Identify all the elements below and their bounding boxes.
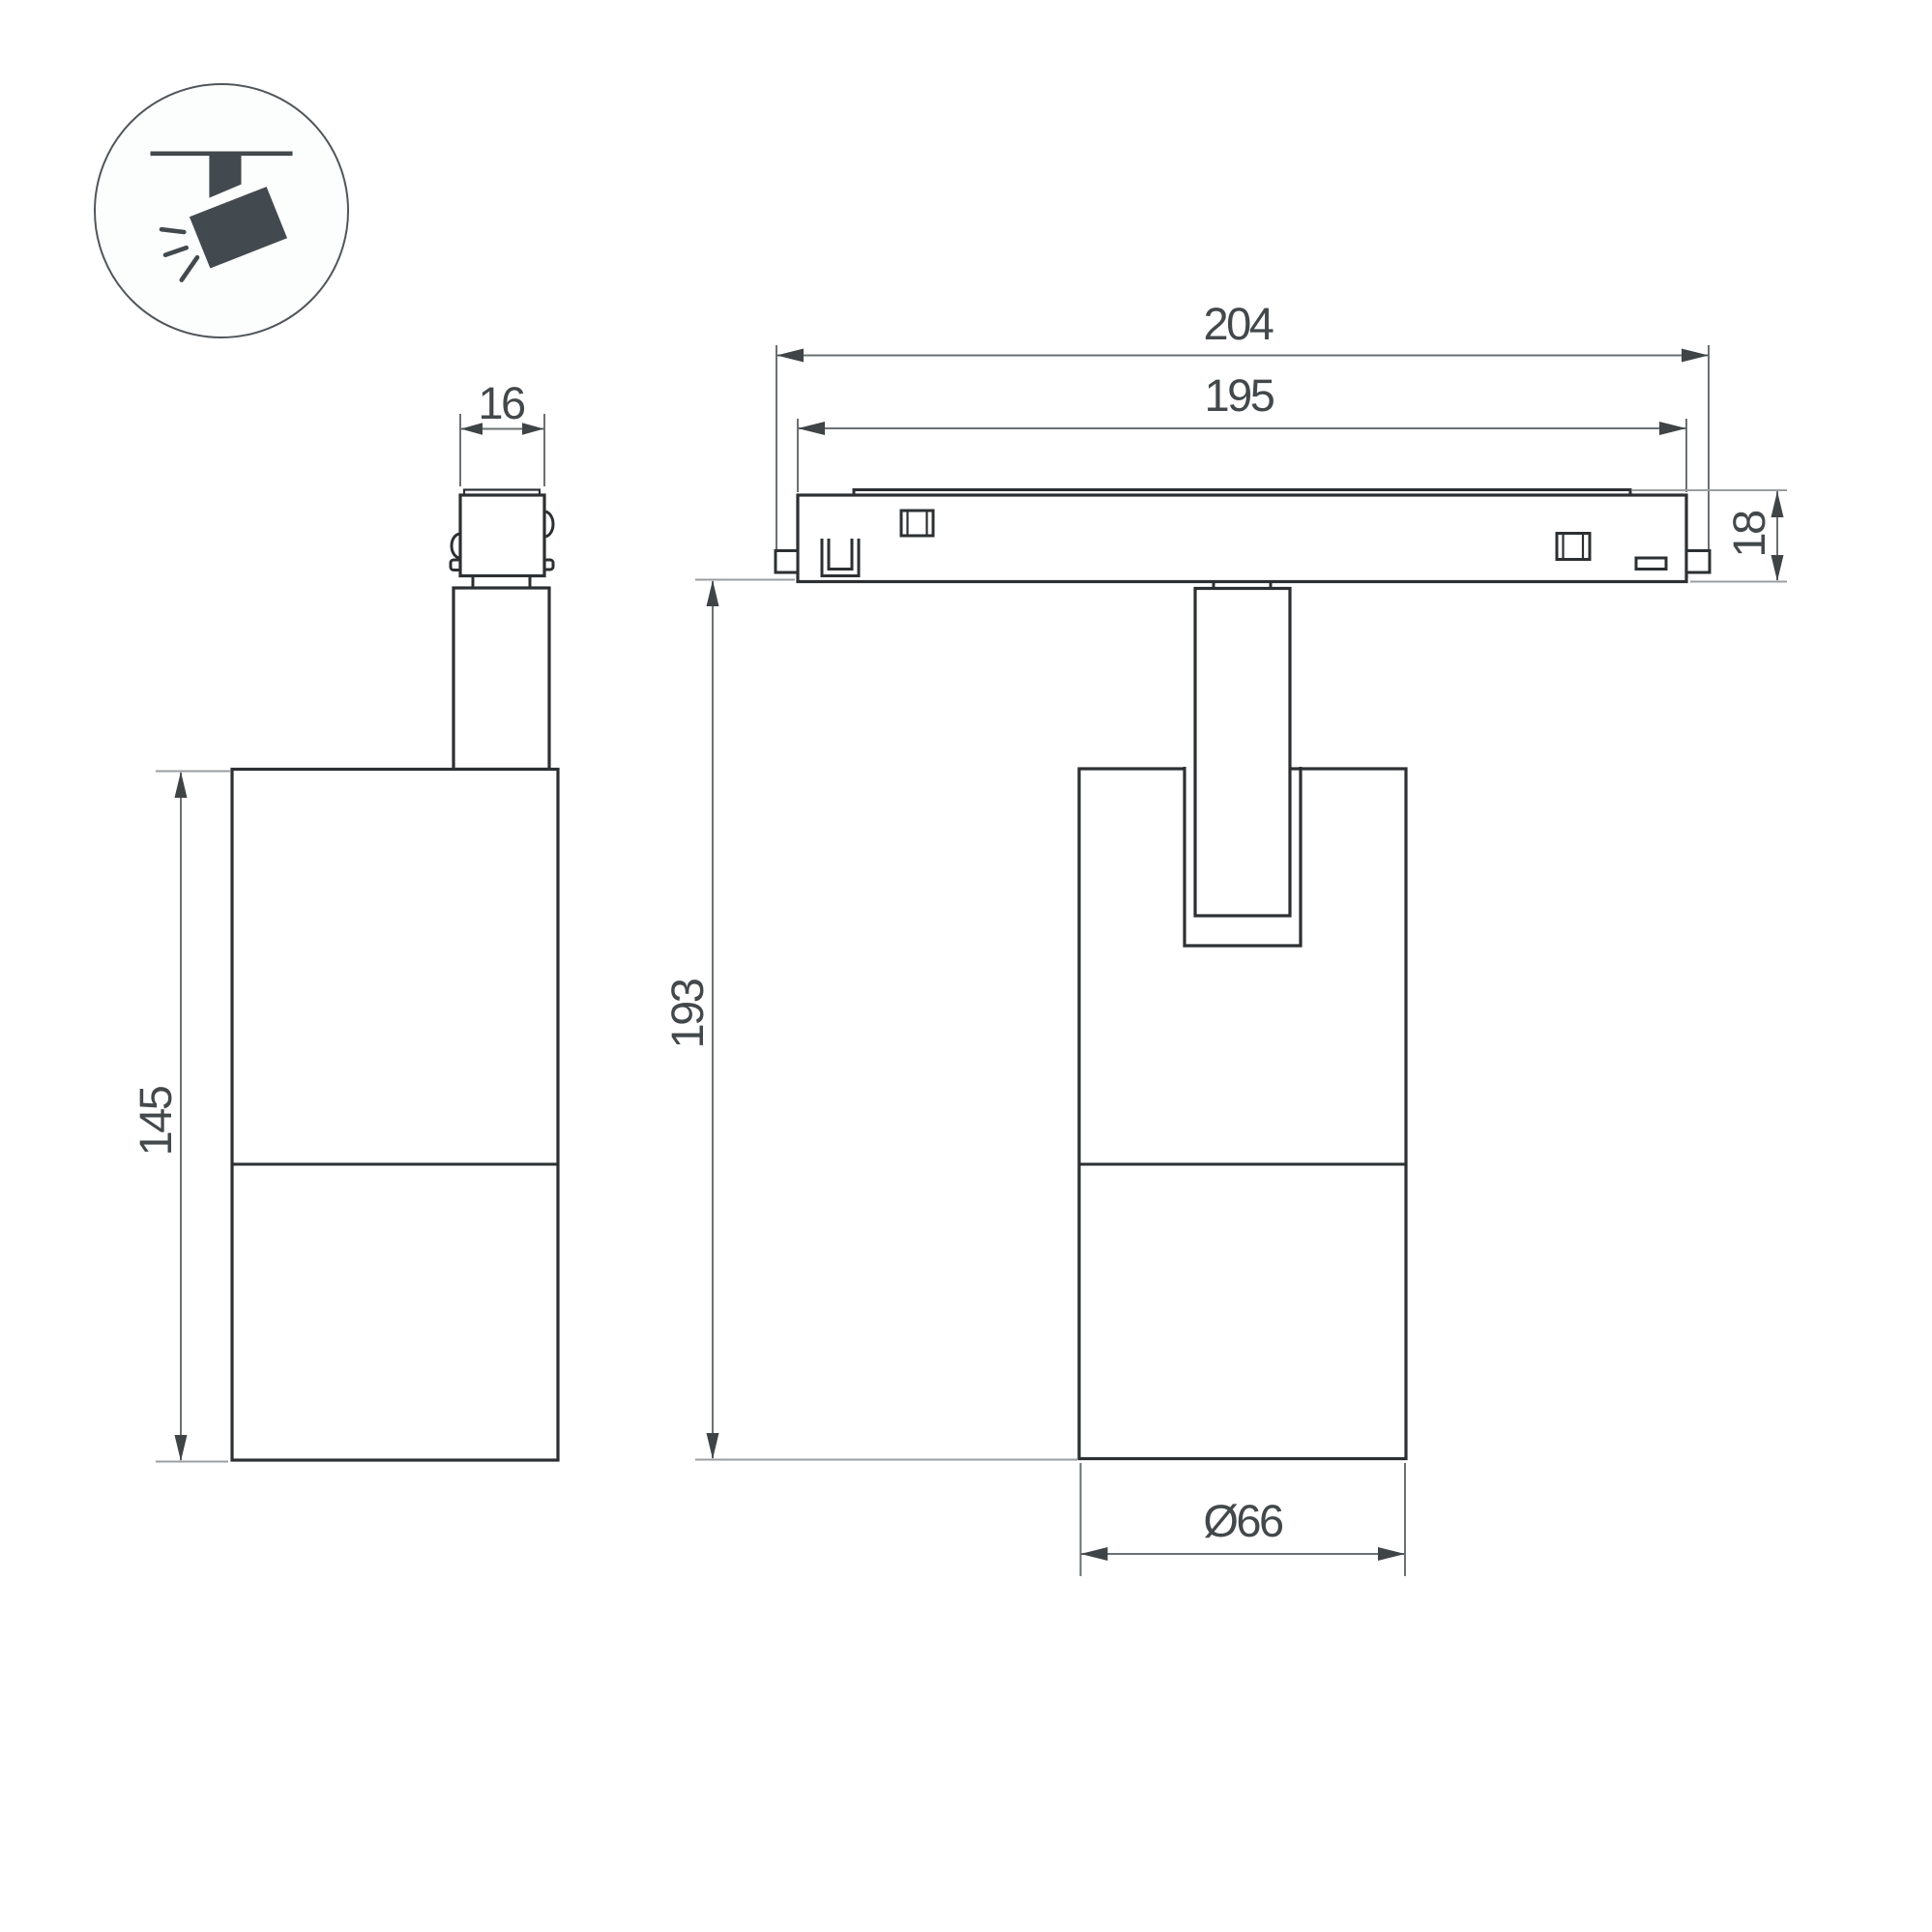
svg-text:Ø66: Ø66 [1203,1495,1283,1546]
svg-text:16: 16 [478,377,525,428]
svg-text:18: 18 [1723,511,1774,558]
svg-text:145: 145 [130,1086,181,1156]
svg-text:204: 204 [1204,298,1273,349]
svg-text:195: 195 [1205,369,1274,421]
svg-text:193: 193 [661,979,713,1048]
